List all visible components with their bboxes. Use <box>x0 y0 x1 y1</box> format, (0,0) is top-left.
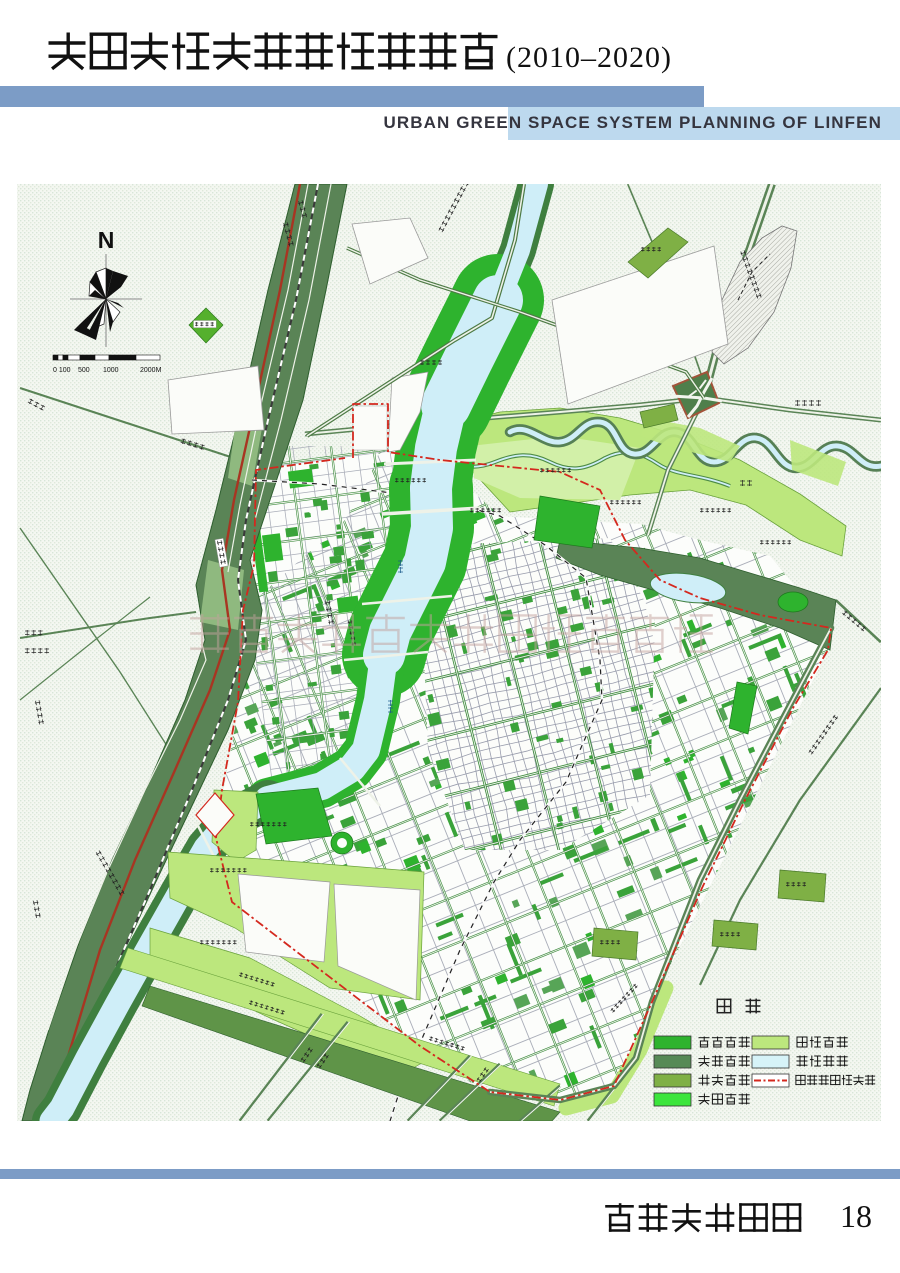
svg-text:0 100: 0 100 <box>53 367 71 374</box>
svg-text:1000: 1000 <box>103 367 119 374</box>
svg-text:500: 500 <box>78 367 90 374</box>
svg-text:N: N <box>98 227 115 253</box>
svg-text:2000M: 2000M <box>140 367 162 374</box>
